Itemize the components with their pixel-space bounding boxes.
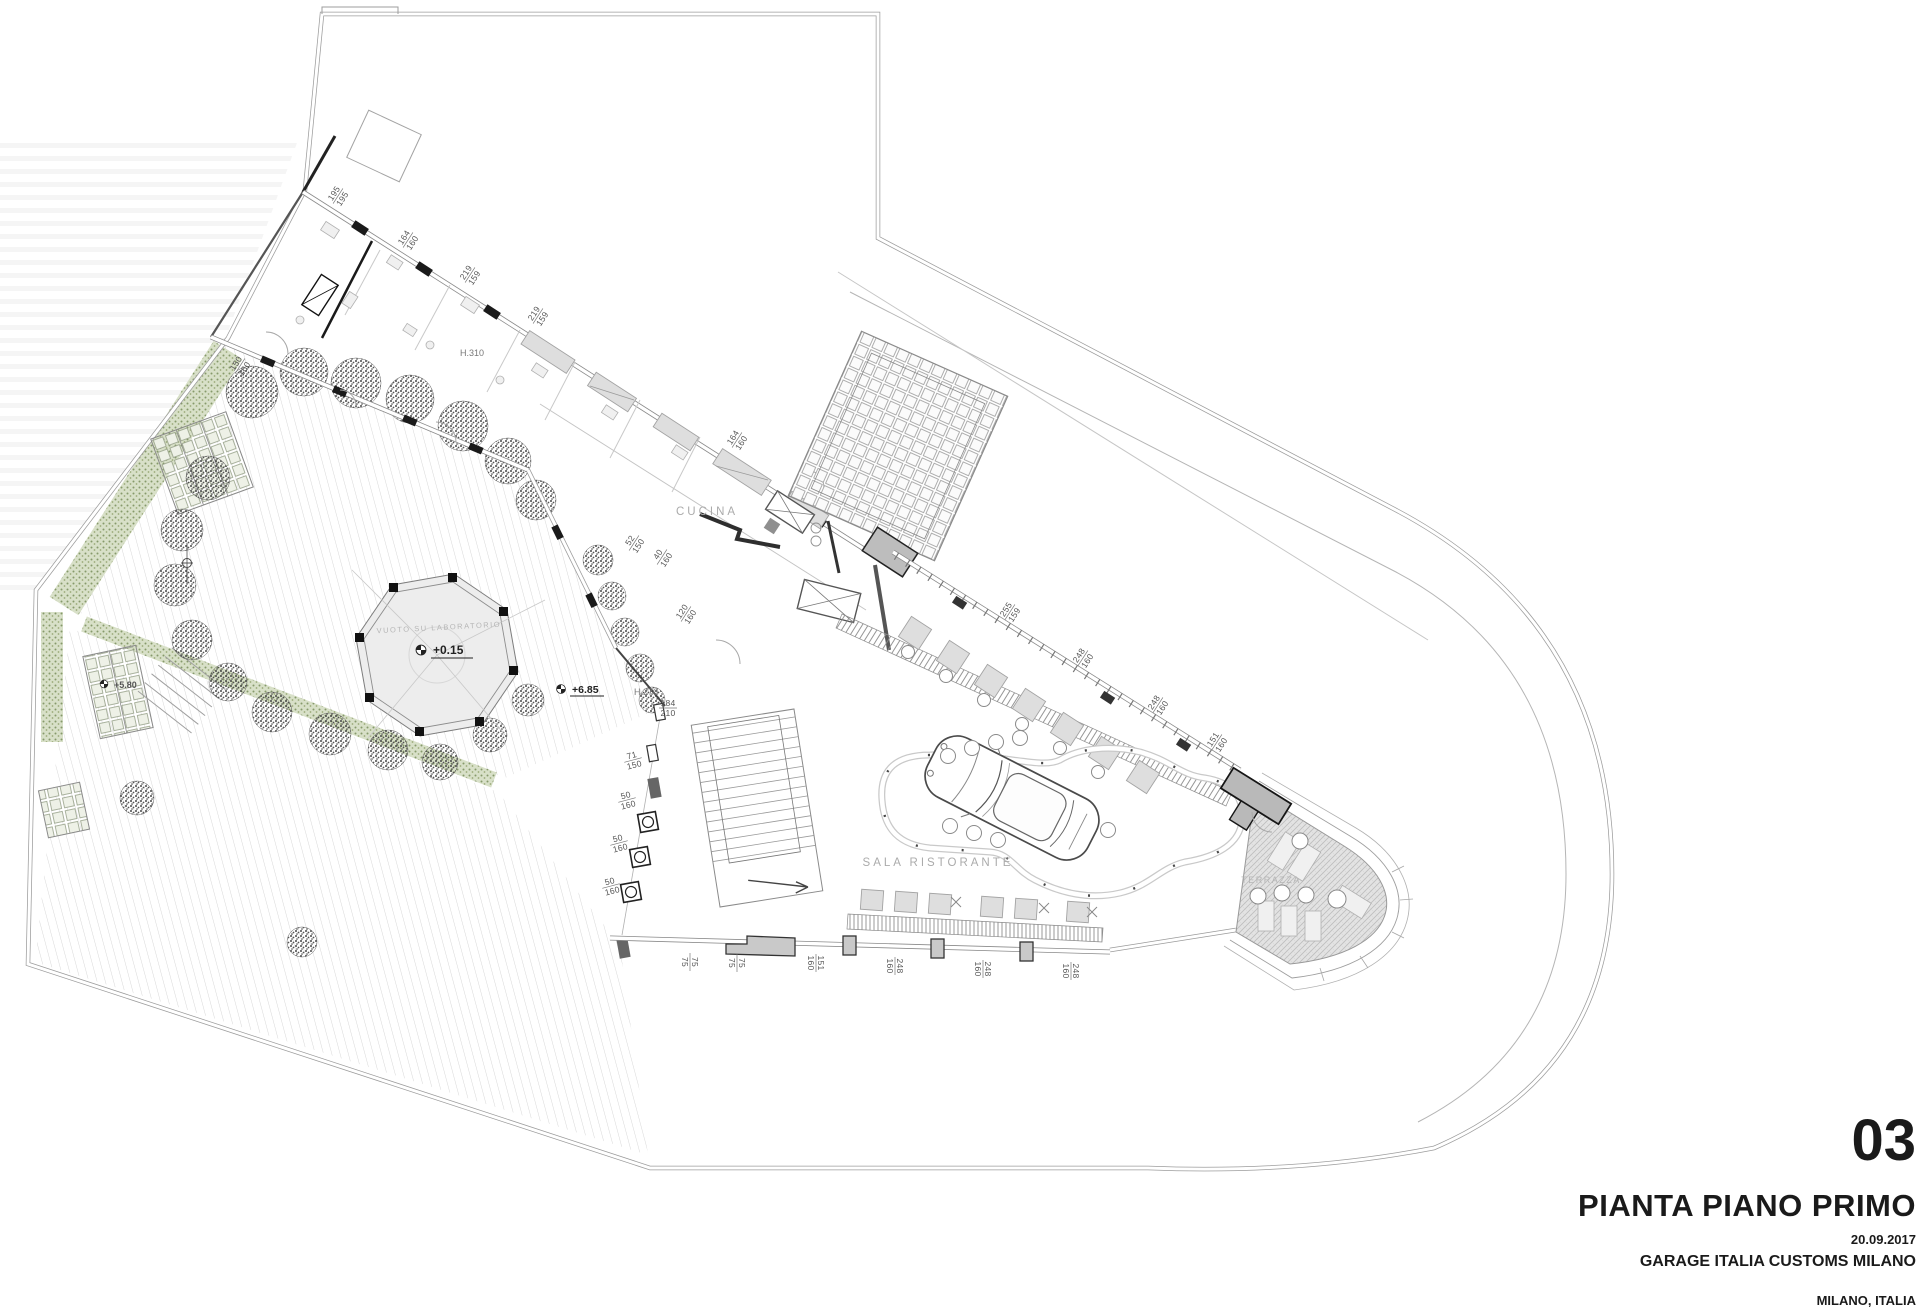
sheet-date: 20.09.2017 <box>1851 1232 1916 1247</box>
svg-text:+5.80: +5.80 <box>114 680 137 690</box>
dining-label: SALA RISTORANTE <box>863 857 1014 869</box>
service-shaft <box>764 518 781 535</box>
svg-text:210: 210 <box>660 708 675 718</box>
svg-text:160: 160 <box>806 955 816 970</box>
svg-text:248: 248 <box>983 961 993 976</box>
svg-text:75: 75 <box>737 958 747 968</box>
floor-plan-drawing: VUOTO SU LABORATORIO +0.15 +6.85 +5.80 <box>0 0 1920 1307</box>
level-marker-icon <box>557 685 566 694</box>
sheet-number: 03 <box>1851 1108 1916 1173</box>
svg-text:75: 75 <box>727 958 737 968</box>
main-staircase <box>691 709 823 907</box>
floor-plan-sheet: VUOTO SU LABORATORIO +0.15 +6.85 +5.80 <box>0 0 1920 1307</box>
svg-text:248: 248 <box>1071 963 1081 978</box>
project-location: MILANO, ITALIA <box>1817 1293 1917 1307</box>
level-value: +0.15 <box>433 643 464 657</box>
svg-text:151: 151 <box>816 955 826 970</box>
banquette-row <box>847 889 1103 942</box>
kitchen-label: CUCINA <box>676 506 738 518</box>
svg-text:+6.85: +6.85 <box>572 684 599 696</box>
project-name: GARAGE ITALIA CUSTOMS MILANO <box>1640 1253 1916 1270</box>
height-label-h310: H.310 <box>460 348 484 358</box>
svg-text:160: 160 <box>1061 963 1071 978</box>
south-wall <box>610 930 1236 961</box>
svg-text:160: 160 <box>973 961 983 976</box>
svg-text:160: 160 <box>885 958 895 973</box>
svg-text:75: 75 <box>680 957 690 967</box>
svg-text:184: 184 <box>660 698 675 708</box>
sheet-title: PIANTA PIANO PRIMO <box>1578 1188 1916 1223</box>
neighbor-structure <box>347 110 422 182</box>
level-marker-icon <box>100 680 108 688</box>
svg-text:248: 248 <box>895 958 905 973</box>
terrace-label: TERRAZZA <box>1241 875 1301 885</box>
height-label-h270: H.270 <box>634 687 658 697</box>
svg-text:75: 75 <box>690 957 700 967</box>
title-block: 03 PIANTA PIANO PRIMO 20.09.2017 GARAGE … <box>1578 1108 1917 1307</box>
level-marker-icon <box>416 645 426 655</box>
west-colonnade <box>616 700 665 959</box>
